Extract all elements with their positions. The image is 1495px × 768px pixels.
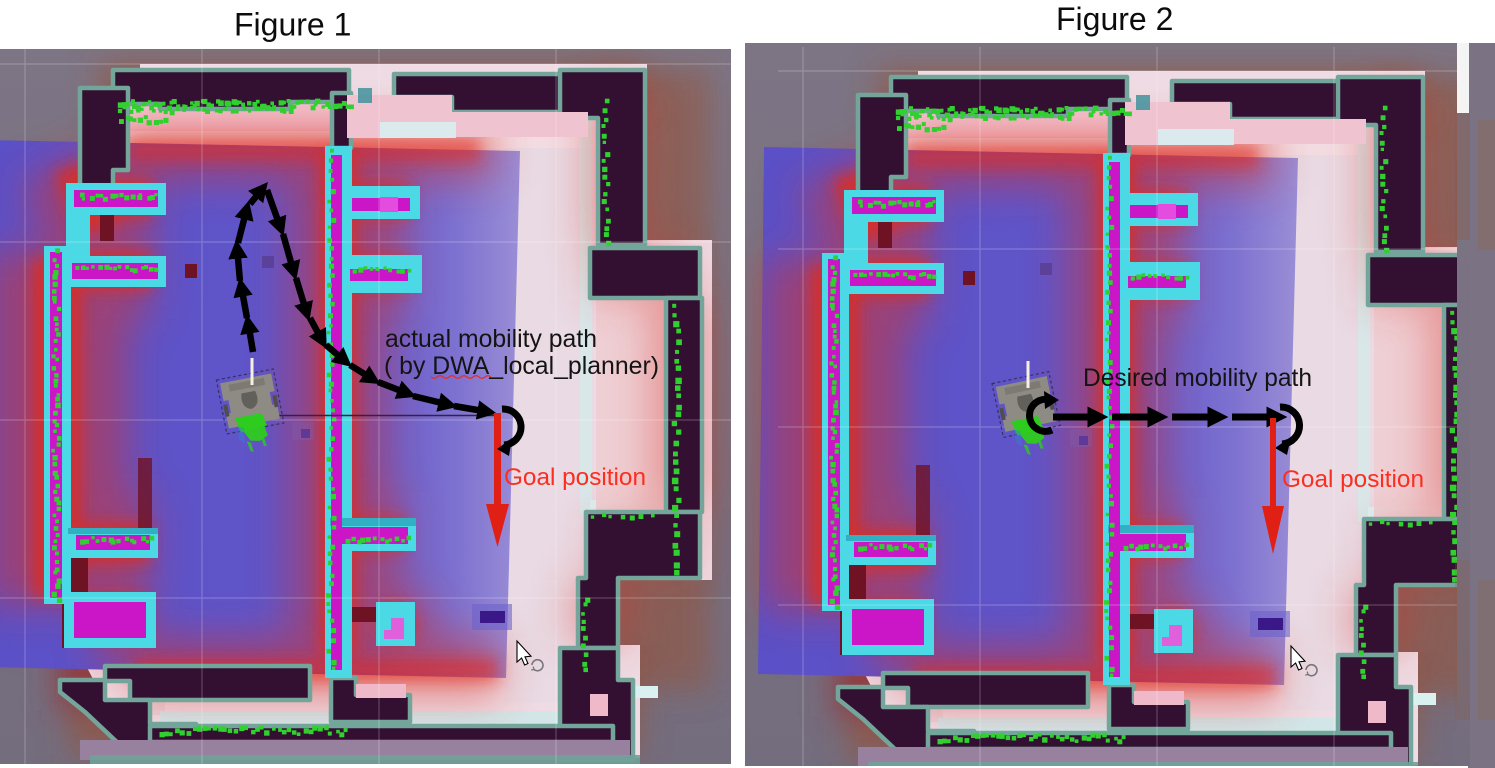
svg-text:Desired mobility path: Desired mobility path xyxy=(1083,364,1312,392)
svg-text:actual mobility path: actual mobility path xyxy=(385,325,597,353)
svg-text:Goal position: Goal position xyxy=(1282,466,1424,493)
svg-text:Figure 1: Figure 1 xyxy=(234,7,351,43)
svg-text:Figure 2: Figure 2 xyxy=(1056,1,1173,37)
svg-text:( by DWA_local_planner): ( by DWA_local_planner) xyxy=(384,352,659,380)
svg-text:Goal position: Goal position xyxy=(504,464,646,491)
